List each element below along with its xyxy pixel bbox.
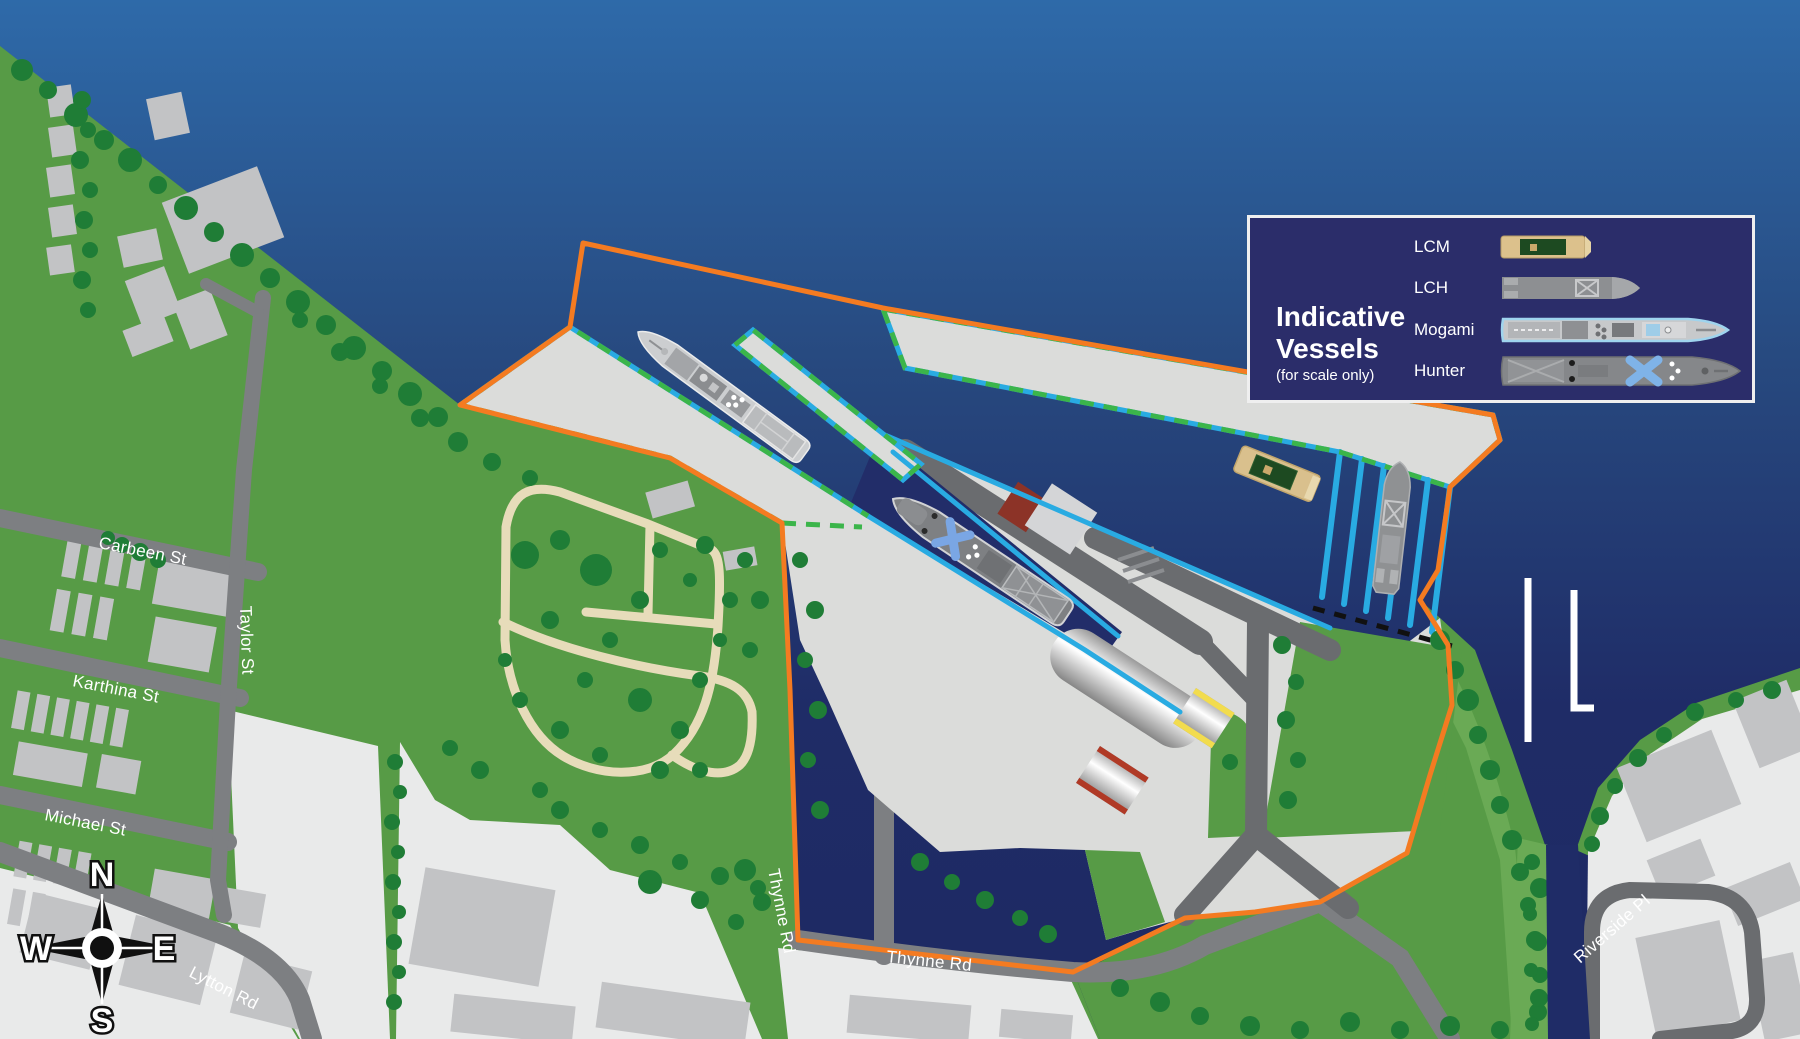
legend-label-lcm: LCM [1414,237,1486,257]
legend-row-mogami: Mogami [1414,310,1746,350]
compass-west: W [20,930,53,968]
port-map-stage: Carbeen St Taylor St Karthina St Michael… [0,0,1800,1039]
legend-title-line2: Vessels [1276,333,1414,365]
legend-label-lch: LCH [1414,278,1486,298]
hunter-icon [1500,350,1746,392]
legend-title-block: Indicative Vessels (for scale only) [1250,218,1414,400]
compass-north: N [90,856,115,894]
legend-row-lcm: LCM [1414,227,1746,267]
lcm-icon [1500,233,1592,261]
legend-row-hunter: Hunter [1414,351,1746,391]
legend-rows: LCM LCH Mogami [1414,218,1752,400]
legend-label-hunter: Hunter [1414,361,1486,381]
legend-label-mogami: Mogami [1414,320,1486,340]
legend-row-lch: LCH [1414,268,1746,308]
compass-east: E [153,930,176,968]
map-canvas: Carbeen St Taylor St Karthina St Michael… [0,0,1800,1039]
legend-subtitle: (for scale only) [1276,367,1414,384]
mogami-icon [1500,314,1732,346]
indicative-vessels-legend: Indicative Vessels (for scale only) LCM … [1247,215,1755,403]
compass-south: S [91,1002,114,1039]
legend-title-line1: Indicative [1276,301,1414,333]
street-label-taylor: Taylor St [236,605,257,674]
lch-icon [1500,274,1642,302]
